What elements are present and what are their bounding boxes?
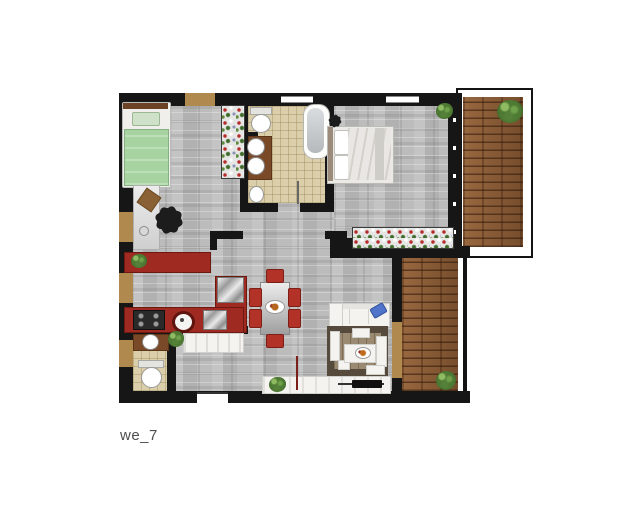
window-top-2 bbox=[386, 96, 419, 103]
kitchen-sink bbox=[172, 311, 195, 333]
floor-cushion-left bbox=[330, 331, 340, 361]
sofa-seam-2 bbox=[368, 309, 369, 324]
coffee-table-plate bbox=[355, 347, 371, 359]
wall-stub-hall-right-leg bbox=[340, 231, 347, 250]
floorplan-page: we_7 bbox=[0, 0, 641, 518]
dining-chair-right-1 bbox=[288, 288, 301, 307]
wc-sink bbox=[142, 334, 159, 350]
dinner-plate bbox=[265, 300, 285, 314]
storage-bench bbox=[183, 333, 244, 353]
double-bed bbox=[327, 126, 394, 184]
wall-stub-hall-left-leg bbox=[210, 231, 217, 250]
corner-fridge bbox=[217, 277, 244, 303]
wc-toilet-bowl bbox=[141, 367, 162, 388]
radiator-mark bbox=[296, 356, 298, 390]
bathroom-door-leaf bbox=[297, 181, 299, 204]
dining-chair-left-1 bbox=[249, 288, 262, 307]
double-bed-pillow-1 bbox=[334, 130, 349, 155]
floor-cushion-bottom bbox=[366, 365, 385, 375]
sofa-seam-1 bbox=[349, 309, 350, 324]
flower-shelf bbox=[221, 105, 245, 179]
desk-lamp bbox=[139, 226, 149, 236]
cooktop bbox=[133, 310, 165, 330]
bedroom-window-dots bbox=[453, 118, 456, 240]
plan-label: we_7 bbox=[120, 427, 158, 444]
lower-terrace-railing bbox=[463, 250, 467, 392]
bathtub bbox=[303, 104, 330, 159]
pedestal-sink bbox=[249, 186, 264, 203]
bathtub-basin bbox=[307, 108, 324, 153]
wall-bathroom-bottom-left bbox=[240, 203, 278, 212]
window-left-1 bbox=[119, 212, 133, 242]
entry-door-bottom bbox=[197, 392, 228, 405]
single-bed-headboard bbox=[123, 103, 168, 109]
floor-cushion-top bbox=[352, 328, 370, 338]
window-left-2 bbox=[119, 273, 133, 303]
double-bed-throw bbox=[375, 128, 384, 180]
wall-bathroom-bottom-right bbox=[300, 203, 334, 212]
dining-chair-left-2 bbox=[249, 309, 262, 328]
single-bed bbox=[122, 102, 171, 188]
dishwasher bbox=[203, 310, 227, 330]
terrace-door bbox=[392, 322, 402, 378]
window-left-3 bbox=[119, 340, 133, 367]
toilet-bowl bbox=[251, 114, 271, 133]
double-bed-blanket bbox=[348, 128, 391, 180]
single-bed-blanket bbox=[124, 129, 169, 186]
floor-cushion-right bbox=[376, 336, 387, 367]
kitchen-sink-drain bbox=[180, 318, 184, 322]
double-bed-pillow-2 bbox=[334, 155, 349, 180]
dining-chair-top bbox=[266, 269, 284, 283]
vanity-sink-1 bbox=[247, 138, 265, 156]
single-bed-pillow bbox=[132, 112, 160, 126]
dining-chair-right-2 bbox=[288, 309, 301, 328]
double-bed-headboard bbox=[328, 127, 333, 181]
vanity-sink-2 bbox=[247, 157, 265, 175]
dining-chair-bottom bbox=[266, 334, 284, 348]
bedside-vase bbox=[329, 115, 341, 127]
window-flower-box bbox=[352, 227, 454, 249]
tv bbox=[352, 380, 382, 388]
window-top-1 bbox=[281, 96, 313, 103]
entry-door-top bbox=[185, 93, 215, 106]
